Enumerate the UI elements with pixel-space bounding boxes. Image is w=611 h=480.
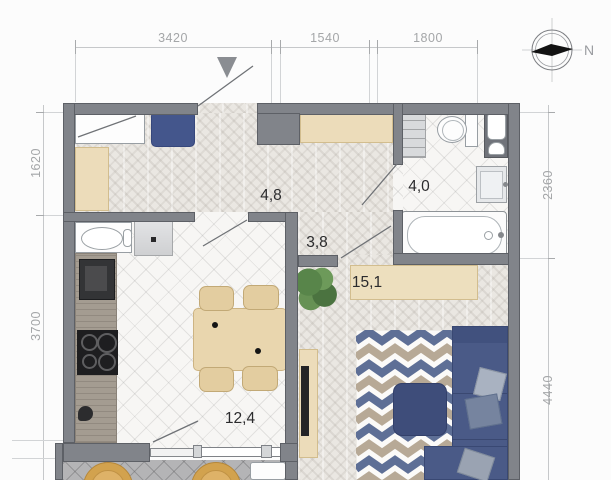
dimension-line-left [43, 105, 44, 480]
dim-label-left-1: 1620 [29, 133, 43, 193]
dim-tick [271, 40, 272, 54]
burner [82, 354, 97, 369]
extension-line [520, 112, 548, 113]
chair-cushion [91, 470, 125, 480]
wall [63, 103, 75, 443]
wall-pier [257, 113, 300, 145]
sofa-seam [453, 439, 507, 440]
room-label-kitchen: 12,4 [214, 410, 266, 428]
compass-needle [531, 44, 573, 56]
extension-line [44, 112, 63, 113]
entry-threshold [198, 103, 257, 113]
entry-door-swing [198, 66, 253, 106]
burner [97, 333, 117, 353]
sofa-arm [453, 327, 507, 343]
dim-tick [477, 40, 478, 54]
room-label-living-room: 15,1 [341, 274, 393, 292]
floor-plan: N 3420 1540 1800 1620 3700 2360 4440 4,8… [0, 0, 611, 480]
toilet-bowl [442, 120, 464, 141]
sink-basin [85, 266, 107, 291]
plant [296, 266, 338, 312]
dim-tick [280, 40, 281, 54]
basin-bowl [480, 171, 503, 199]
chair [199, 286, 234, 311]
bathtub-drain [484, 231, 493, 240]
wall [63, 443, 150, 462]
balcony-door-leaf [150, 448, 196, 457]
extension-line [369, 54, 370, 103]
dim-label-left-2: 3700 [29, 296, 43, 356]
wall [285, 212, 298, 480]
burner [81, 334, 98, 351]
dim-label-right-2: 4440 [541, 360, 555, 420]
extension-line [12, 440, 63, 441]
wall [508, 103, 520, 480]
tv [301, 366, 309, 436]
chair [243, 285, 279, 310]
extension-line [75, 54, 76, 102]
north-label: N [584, 42, 594, 58]
dim-label-right-1: 2360 [541, 155, 555, 215]
dim-label-top-3: 1800 [398, 31, 458, 45]
fridge-handle [151, 237, 156, 242]
wall [63, 103, 198, 115]
chair [199, 367, 234, 392]
washing-machine [75, 222, 132, 253]
hall-wardrobe [75, 147, 109, 211]
wall [393, 103, 403, 165]
window-mullion [261, 445, 272, 458]
hall-cabinet [75, 111, 145, 144]
niche-fixture [488, 142, 505, 155]
wall [393, 253, 520, 265]
extension-line [520, 258, 548, 259]
table-decor [255, 348, 261, 354]
extension-line [44, 215, 63, 216]
bathtub-faucet [498, 232, 504, 238]
dimension-line-top [75, 47, 477, 48]
ottoman [393, 383, 447, 436]
hall-pouf [151, 111, 195, 147]
dining-table [193, 308, 287, 371]
pillow [465, 393, 503, 429]
niche-fixture [487, 112, 506, 140]
table-decor [212, 322, 218, 328]
dim-tick [377, 40, 378, 54]
extension-line [271, 54, 272, 103]
burner [98, 353, 116, 371]
room-label-hallway: 4,8 [248, 187, 294, 205]
washer-detail [123, 229, 132, 247]
room-label-bathroom: 4,0 [396, 178, 442, 196]
bath-niche [484, 108, 508, 158]
kettle [78, 406, 93, 421]
washbasin [476, 166, 507, 203]
room-label-corridor: 3,8 [294, 234, 340, 252]
chair-cushion [199, 470, 233, 480]
wall-pier [280, 443, 298, 462]
kitchen-sink [79, 259, 115, 300]
stove [77, 330, 118, 375]
wall [63, 212, 195, 222]
entrance-arrow-icon [217, 57, 237, 78]
chair [242, 366, 278, 391]
fridge [134, 219, 173, 256]
bath-shelving [399, 110, 426, 158]
extension-line [280, 54, 281, 103]
extension-line [377, 54, 378, 103]
window-mullion [193, 445, 202, 458]
wall [298, 255, 338, 267]
corridor-wardrobe [300, 111, 393, 143]
dim-label-top-1: 3420 [143, 31, 203, 45]
dim-tick [369, 40, 370, 54]
balcony-wall [55, 443, 63, 480]
extension-line [12, 458, 55, 459]
bathtub [401, 211, 507, 259]
washer-drum [81, 227, 123, 250]
balcony-table [250, 462, 286, 480]
dim-tick [75, 40, 76, 54]
toilet [437, 116, 467, 143]
extension-line [477, 54, 478, 103]
dim-label-top-2: 1540 [295, 31, 355, 45]
